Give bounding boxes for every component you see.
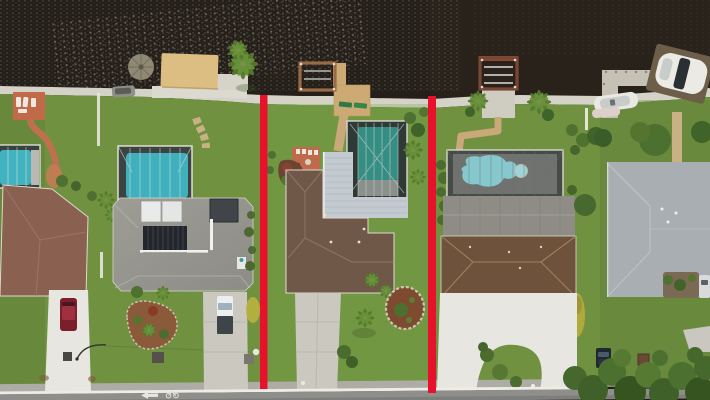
ridge-vent [140,250,208,253]
left-pool-enclosure [118,146,192,202]
golden-shrub [246,297,260,323]
right-pool-enclosure [447,150,563,198]
solar-panel-array [143,226,187,253]
paver-path [672,112,682,162]
garden-courtyard [663,272,699,298]
boundary-line-left [260,95,268,389]
boat-canopy [160,53,218,89]
fence-segment [585,108,588,130]
red-car [60,298,77,331]
center-pool-enclosure [347,121,407,199]
right-house-roof-brown [441,236,576,297]
boundary-line-right [428,96,436,393]
silver-car [699,275,710,298]
utility-box [63,352,72,361]
utility-box [152,352,164,363]
spa [515,165,528,178]
right-house-roof-gray [443,196,575,238]
paver-deck [334,85,370,116]
dark-roof-panel [210,199,238,222]
tiki-hut [128,54,154,80]
paver-walk [338,115,344,151]
left-pool [126,153,188,198]
mailbox [301,381,305,385]
aerial-photo [0,0,710,400]
boundary-fence [97,93,100,146]
gray-boat [112,85,136,98]
aerial-photo-canvas [0,0,710,400]
white-pickup-truck [217,296,233,334]
far-left-pool-enclosure [0,145,40,188]
oval-mulch-island [386,287,424,329]
center-pool [358,127,398,180]
